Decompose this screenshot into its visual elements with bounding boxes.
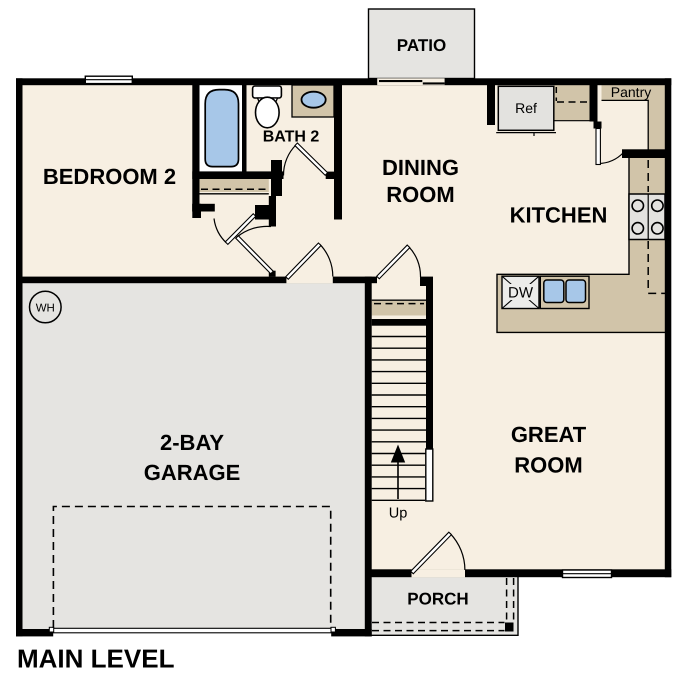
- svg-text:2-BAY: 2-BAY: [160, 430, 224, 455]
- svg-text:WH: WH: [36, 303, 55, 315]
- svg-text:PATIO: PATIO: [397, 36, 446, 55]
- svg-text:BEDROOM 2: BEDROOM 2: [43, 164, 176, 189]
- svg-text:PORCH: PORCH: [407, 590, 468, 609]
- svg-text:MAIN LEVEL: MAIN LEVEL: [17, 644, 175, 674]
- svg-text:DW: DW: [508, 285, 534, 302]
- svg-text:Up: Up: [389, 506, 408, 522]
- svg-text:ROOM: ROOM: [386, 182, 454, 207]
- svg-text:Ref: Ref: [515, 100, 537, 116]
- svg-text:BATH 2: BATH 2: [263, 129, 320, 146]
- svg-text:ROOM: ROOM: [514, 453, 582, 478]
- svg-text:KITCHEN: KITCHEN: [510, 203, 608, 228]
- svg-text:DINING: DINING: [382, 155, 459, 180]
- svg-text:Pantry: Pantry: [611, 84, 651, 100]
- svg-text:GREAT: GREAT: [511, 422, 587, 447]
- svg-text:GARAGE: GARAGE: [144, 460, 241, 485]
